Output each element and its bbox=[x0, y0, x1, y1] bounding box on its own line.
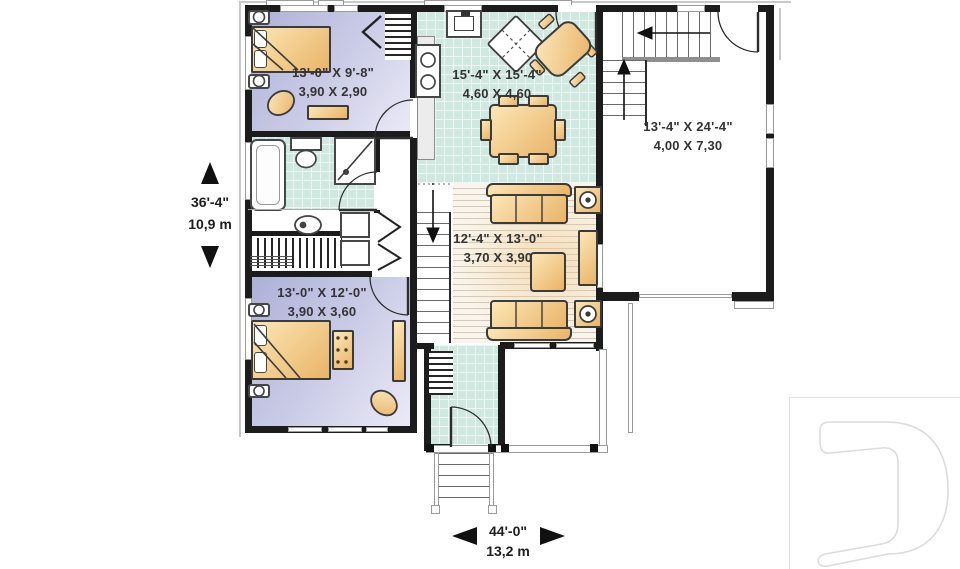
kitchen-faucet bbox=[461, 10, 470, 16]
bedroom1-size-metric: 3,90 X 2,90 bbox=[253, 83, 413, 102]
wall-garage-bottom-left bbox=[603, 292, 639, 301]
porch-post-b bbox=[488, 444, 496, 452]
window-living-bottom-a bbox=[514, 343, 550, 348]
wall-garage-bottom-right bbox=[732, 292, 774, 301]
door-opening-garage bbox=[720, 5, 758, 12]
dining-chair-left bbox=[480, 119, 492, 141]
porch-rail-bottom bbox=[426, 445, 608, 453]
width-metric: 13,2 m bbox=[476, 543, 540, 559]
sofa-top-seat bbox=[490, 194, 568, 224]
window-garage-top bbox=[677, 5, 705, 12]
wall-bedroom1-bath bbox=[245, 131, 417, 137]
garage-stairs-lower bbox=[603, 60, 647, 126]
builder-logo-d-icon bbox=[790, 398, 960, 569]
dining-chair-bottom-a bbox=[498, 153, 519, 165]
living-label: 12'-4" X 13'-0" 3,70 X 3,90 bbox=[418, 230, 578, 268]
width-arrow-left-icon bbox=[452, 527, 477, 545]
living-size-imperial: 12'-4" X 13'-0" bbox=[418, 230, 578, 249]
floor-plan-canvas: 13'-0" X 9'-8" 3,90 X 2,90 15'-4" X 15'-… bbox=[0, 0, 960, 569]
bedroom1-size-imperial: 13'-0" X 9'-8" bbox=[253, 64, 413, 83]
bedroom2-size-metric: 3,90 X 3,60 bbox=[242, 303, 402, 322]
side-table-bottom bbox=[574, 300, 602, 328]
garage-stoop bbox=[734, 301, 774, 309]
bedroom1-pillow-a bbox=[254, 30, 267, 48]
porch-post-d bbox=[590, 444, 598, 452]
roof-outline-right bbox=[779, 8, 781, 60]
width-imperial: 44'-0" bbox=[478, 523, 538, 539]
steps-post-right bbox=[488, 505, 497, 514]
garage-size-metric: 4,00 X 7,30 bbox=[608, 137, 768, 156]
window-living-bottom-b bbox=[556, 343, 594, 348]
sofa-bottom-back bbox=[486, 327, 572, 341]
bedroom2-dresser bbox=[332, 330, 354, 370]
washer bbox=[340, 212, 370, 238]
door-opening-bedroom2 bbox=[372, 271, 410, 277]
porch-rail-right bbox=[599, 349, 607, 447]
side-table-top bbox=[574, 186, 602, 214]
garage-label: 13'-4" X 24'-4" 4,00 X 7,30 bbox=[608, 118, 768, 156]
garage-door-line bbox=[639, 294, 732, 298]
bedroom1-closet bbox=[385, 12, 411, 60]
dining-chair-bottom-b bbox=[528, 153, 549, 165]
bedroom1-nightstand-top bbox=[248, 10, 270, 25]
depth-imperial: 36'-4" bbox=[165, 194, 255, 210]
kitchen-label: 15'-4" X 15'-4" 4,60 X 4,60 bbox=[417, 66, 577, 104]
depth-arrow-up-icon bbox=[201, 162, 219, 184]
wall-hall-stub bbox=[245, 231, 350, 236]
window-bedroom2-bottom-a bbox=[288, 427, 322, 432]
window-bedroom1-top-a bbox=[280, 5, 328, 12]
steps-rail-right bbox=[489, 453, 494, 511]
front-steps bbox=[439, 453, 489, 508]
steps-post-left bbox=[431, 505, 440, 514]
wall-entry-right bbox=[498, 345, 505, 451]
bedroom2-pillow-a bbox=[254, 325, 267, 346]
porch-post-c bbox=[501, 444, 509, 452]
bedroom1-label: 13'-0" X 9'-8" 3,90 X 2,90 bbox=[253, 64, 413, 102]
garage-size-imperial: 13'-4" X 24'-4" bbox=[608, 118, 768, 137]
sofa-bottom-seat bbox=[490, 300, 568, 330]
media-cabinet bbox=[578, 230, 598, 286]
door-opening-bedroom1 bbox=[410, 98, 417, 138]
width-arrow-right-icon bbox=[540, 527, 565, 545]
bedroom2-label: 13'-0" X 12'-0" 3,90 X 3,60 bbox=[242, 284, 402, 322]
kitchen-size-metric: 4,60 X 4,60 bbox=[417, 85, 577, 104]
kitchen-sink-basin bbox=[454, 16, 474, 31]
builder-logo: D bbox=[789, 397, 960, 569]
garage-stairs-upper bbox=[622, 12, 718, 57]
entry-closet bbox=[429, 351, 453, 395]
window-bedroom1-top-b bbox=[334, 5, 358, 12]
window-bedroom2-bottom-b bbox=[328, 427, 362, 432]
bedroom2-size-imperial: 13'-0" X 12'-0" bbox=[242, 284, 402, 303]
corner-shower bbox=[334, 137, 376, 185]
bathroom-sink-counter bbox=[290, 137, 322, 151]
hall-closet-shelf bbox=[250, 256, 292, 268]
living-size-metric: 3,70 X 3,90 bbox=[418, 249, 578, 268]
bathtub-inner bbox=[256, 145, 280, 205]
dryer bbox=[340, 240, 370, 266]
depth-metric: 10,9 m bbox=[165, 216, 255, 232]
vanity-line bbox=[248, 209, 376, 210]
side-walkway bbox=[628, 303, 633, 433]
porch-post-a bbox=[426, 444, 434, 452]
depth-arrow-down-icon bbox=[201, 246, 219, 268]
bedroom1-dresser bbox=[307, 105, 349, 120]
dining-chair-right bbox=[554, 119, 566, 141]
window-bedroom2-bottom-c bbox=[366, 427, 388, 432]
kitchen-size-imperial: 15'-4" X 15'-4" bbox=[417, 66, 577, 85]
bedroom2-pillow-b bbox=[254, 352, 267, 373]
dining-table bbox=[489, 104, 557, 158]
bedroom2-long-dresser bbox=[392, 320, 406, 382]
bedroom2-nightstand-bottom bbox=[248, 384, 270, 398]
door-opening-backdoor bbox=[558, 5, 596, 12]
